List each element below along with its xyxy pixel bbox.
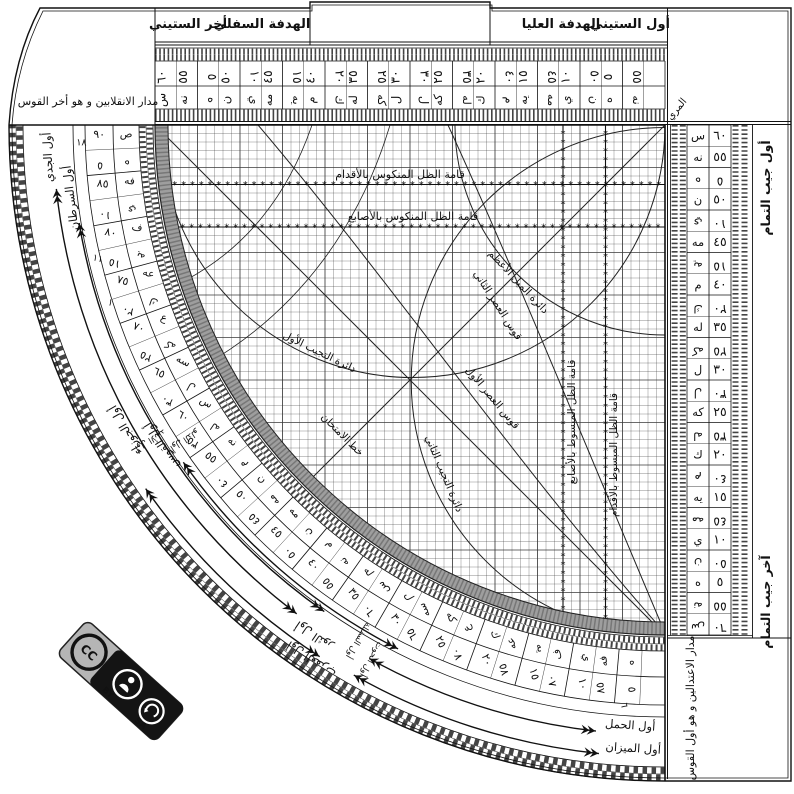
asterisk-mark: * [472, 180, 477, 191]
asterisk-mark: * [278, 180, 283, 191]
sixty-scale-abjad: ن [218, 96, 232, 104]
asterisk-mark: * [629, 223, 634, 234]
asterisk-mark: * [375, 180, 380, 191]
asterisk-mark: * [427, 223, 432, 234]
asterisk-mark: * [444, 223, 449, 234]
cosine-scale-numeral-complement: ٥٠ [713, 557, 726, 572]
asterisk-mark: * [233, 223, 238, 234]
asterisk-mark: * [190, 180, 195, 191]
asterisk-mark: * [242, 223, 247, 234]
cosine-scale-abjad-complement: نه [693, 600, 702, 614]
sixty-scale-abjad: كه [431, 94, 445, 106]
asterisk-mark: * [550, 223, 555, 234]
asterisk-mark: * [462, 223, 467, 234]
asterisk-mark: * [331, 180, 336, 191]
cosine-scale-numeral: ٦٠ [713, 128, 726, 143]
sixty-scale-abjad-complement: كه [375, 94, 389, 106]
cosine-scale-numeral: ٤٠ [713, 276, 726, 291]
asterisk-mark: * [541, 223, 546, 234]
limb-degree-abjad-complement: ه [124, 158, 130, 170]
cosine-scale-numeral-complement: ٤٠ [713, 472, 726, 487]
asterisk-mark: * [268, 223, 273, 234]
limb-degree-abjad-complement: فه [597, 655, 610, 667]
asterisk-mark: * [480, 180, 485, 191]
sixty-scale-abjad: مه [261, 94, 275, 106]
limb-degree-numeral-complement: ٥ [97, 159, 104, 172]
asterisk-mark: * [189, 223, 194, 234]
asterisk-mark: * [234, 180, 239, 191]
asterisk-mark: * [198, 223, 203, 234]
asterisk-mark: * [419, 180, 424, 191]
asterisk-mark: * [568, 180, 573, 191]
cosine-scale-numeral-complement: ١٠ [713, 217, 726, 232]
asterisk-mark: * [577, 180, 582, 191]
limb-degree-numeral-complement: ١٠ [98, 208, 112, 223]
asterisk-mark: * [436, 223, 441, 234]
sixty-scale-numeral-complement: ١٥ [290, 70, 305, 83]
sixty-scale-abjad: ك [473, 95, 487, 104]
asterisk-mark: * [321, 223, 326, 234]
limb-degree-numeral-complement: ٨٠ [544, 674, 559, 688]
cosine-scale-abjad-complement: ل [694, 387, 702, 401]
asterisk-mark: * [445, 180, 450, 191]
sixty-scale-numeral-complement: ٥ [205, 74, 220, 81]
asterisk-mark: * [207, 223, 212, 234]
cosine-scale-abjad: ن [694, 192, 702, 206]
sixty-scale-abjad-complement: م [503, 96, 517, 103]
asterisk-mark: * [568, 223, 573, 234]
asterisk-mark: * [374, 223, 379, 234]
label-madar-itidalayn: مدار الاعتدالين و هو أول القوس [683, 635, 697, 780]
cosine-scale-numeral-complement: ٥ [717, 175, 724, 190]
sixty-scale-numeral-complement: ٤٥ [545, 70, 560, 83]
asterisk-mark: * [366, 180, 371, 191]
asterisk-mark: * [621, 180, 626, 191]
asterisk-mark: * [497, 223, 502, 234]
cosine-scale-abjad: ك [693, 447, 702, 461]
asterisk-mark: * [172, 180, 177, 191]
asterisk-mark: * [595, 180, 600, 191]
cosine-scale-numeral-complement: ١٥ [713, 260, 726, 275]
asterisk-mark: * [277, 223, 282, 234]
asterisk-mark: * [286, 223, 291, 234]
sixty-scale-abjad-complement: ه [205, 97, 219, 103]
asterisk-mark: * [542, 180, 547, 191]
sixty-scale-numeral: ٦٠ [154, 70, 169, 83]
cosine-scale-abjad-complement: كه [692, 345, 704, 359]
cosine-scale-numeral-complement: ٤٥ [713, 515, 726, 530]
asterisk-mark: * [252, 180, 257, 191]
asterisk-mark: * [181, 180, 186, 191]
cosine-scale-abjad-complement: ك [693, 302, 702, 316]
asterisk-mark: * [488, 223, 493, 234]
cosine-scale-numeral: ١٥ [713, 489, 726, 504]
sine-quadrant-diagram: ****************************************… [0, 0, 794, 794]
asterisk-mark: * [260, 223, 265, 234]
asterisk-mark: * [260, 180, 265, 191]
asterisk-mark: * [348, 223, 353, 234]
cosine-scale-abjad-complement: ه [695, 175, 701, 189]
cosine-scale-numeral: ٢٠ [713, 446, 726, 461]
asterisk-mark: * [313, 180, 318, 191]
asterisk-mark: * [453, 223, 458, 234]
cosine-scale-abjad: يه [693, 490, 702, 504]
limb-degree-numeral: ١٠ [576, 677, 591, 691]
asterisk-mark: * [594, 223, 599, 234]
asterisk-mark: * [428, 180, 433, 191]
asterisk-mark: * [243, 180, 248, 191]
limb-degree-abjad: ف [131, 221, 144, 235]
label-awwal-jayb-tamam: أول جيب التمام [757, 140, 774, 235]
asterisk-mark: * [383, 223, 388, 234]
limb-degree-abjad-complement: ف [550, 648, 564, 661]
asterisk-mark: * [356, 223, 361, 234]
sixty-scale-abjad-complement: ك [333, 95, 347, 104]
cosine-scale-numeral: ٥٥ [713, 149, 726, 164]
limb-degree-numeral: ٨٥ [96, 177, 109, 191]
cosine-scale-numeral: ٣٥ [713, 319, 726, 334]
sixty-scale-numeral-complement: ٢٥ [375, 70, 390, 83]
asterisk-mark: * [524, 180, 529, 191]
asterisk-mark: * [585, 223, 590, 234]
sixty-scale-abjad-complement: مه [545, 94, 559, 106]
asterisk-mark: * [612, 223, 617, 234]
asterisk-mark: * [339, 223, 344, 234]
asterisk-mark: * [312, 223, 317, 234]
asterisk-mark: * [296, 180, 301, 191]
limb-degree-abjad: فه [124, 175, 136, 188]
cosine-scale-numeral: ٤٥ [713, 234, 726, 249]
sixty-scale-numeral-complement: ٥٠ [588, 70, 603, 83]
grid-label-mankus-aqdam: قامة الظل المنكوس بالأقدام [335, 167, 465, 181]
cosine-scale-numeral: ٢٥ [713, 404, 726, 419]
cosine-scale-numeral: ٣٠ [713, 361, 726, 376]
asterisk-mark: * [287, 180, 292, 191]
cosine-scale-numeral-complement: ٣٥ [713, 430, 726, 445]
asterisk-mark: * [409, 223, 414, 234]
cosine-scale-abjad-complement: م [694, 472, 701, 486]
asterisk-mark: * [216, 180, 221, 191]
cosine-scale-numeral-complement: ٢٠ [713, 302, 726, 317]
asterisk-mark: * [392, 223, 397, 234]
asterisk-mark: * [576, 223, 581, 234]
asterisk-mark: * [630, 180, 635, 191]
cosine-scale-numeral-complement: ٦٠ [713, 621, 726, 636]
sixty-scale-abjad-complement: ي [248, 95, 262, 104]
limb-extra-mark: ٦ [618, 702, 629, 708]
cosine-scale-numeral-complement: ٢٥ [713, 345, 726, 360]
cosine-scale-abjad-complement: مه [692, 515, 704, 529]
grid-label-mabsut-aqdam: قامة الظل المبسوط بالأقدام [607, 393, 620, 517]
cosine-scale-abjad: س [691, 129, 705, 144]
sixty-scale-abjad: ي [558, 95, 572, 104]
asterisk-mark: * [322, 180, 327, 191]
asterisk-mark: * [208, 180, 213, 191]
sixty-scale-numeral-complement: ٢٠ [333, 70, 348, 83]
asterisk-mark: * [656, 180, 661, 191]
limb-degree-abjad: ه [627, 660, 639, 666]
asterisk-mark: * [533, 180, 538, 191]
sixty-scale-numeral-complement: ١٠ [248, 70, 263, 83]
title-awwal-sittini: أول الستيني [590, 15, 670, 32]
cosine-scale-abjad-complement: ن [694, 557, 702, 571]
limb-degree-numeral: ٩٠ [93, 128, 105, 141]
cosine-scale-numeral: ٥٠ [713, 191, 726, 206]
cosine-scale-abjad: ل [694, 362, 702, 376]
asterisk-mark: * [638, 223, 643, 234]
grid-label-mabsut-asabi: قامة الظل المبسوط بالأصابع [565, 360, 578, 485]
cosine-scale-abjad: ه [695, 575, 701, 589]
label-madar-inqilabayn: مدار الانقلابين و هو أخر القوس [18, 94, 159, 108]
sixty-scale-abjad-complement: ل [418, 96, 432, 104]
asterisk-mark: * [506, 223, 511, 234]
asterisk-mark: * [400, 223, 405, 234]
sixty-scale-numeral-complement: ٤٠ [503, 70, 518, 83]
asterisk-mark: * [269, 180, 274, 191]
asterisk-mark: * [225, 180, 230, 191]
asterisk-mark: * [524, 223, 529, 234]
grid-label-mankus-asabi: قامة الظل المنكوس بالأصابع [348, 209, 478, 223]
asterisk-mark: * [454, 180, 459, 191]
limb-extra-mark: ١٨ [76, 137, 87, 148]
asterisk-mark: * [392, 180, 397, 191]
asterisk-mark: * [348, 180, 353, 191]
sixty-scale-abjad-complement: يه [290, 95, 304, 104]
asterisk-mark: * [304, 180, 309, 191]
cosine-scale-abjad: ي [693, 532, 702, 546]
asterisk-mark: * [516, 180, 521, 191]
asterisk-mark: * [489, 180, 494, 191]
sixty-scale-abjad: يه [516, 95, 530, 104]
sixty-scale-abjad: م [303, 96, 317, 103]
asterisk-mark: * [180, 223, 185, 234]
asterisk-mark: * [216, 223, 221, 234]
asterisk-mark: * [612, 180, 617, 191]
title-hadafa-sufla: الهدفة السفلي [214, 17, 311, 32]
asterisk-mark: * [436, 180, 441, 191]
asterisk-mark: * [401, 180, 406, 191]
asterisk-mark: * [639, 180, 644, 191]
cosine-scale-numeral: ١٠ [713, 531, 726, 546]
asterisk-mark: * [251, 223, 256, 234]
title-hadafa-ulya: الهدفة العليا [522, 17, 601, 32]
asterisk-mark: * [532, 223, 537, 234]
asterisk-mark: * [199, 180, 204, 191]
cosine-scale-abjad: كه [692, 405, 704, 419]
sixty-scale-abjad: له [346, 95, 360, 105]
asterisk-mark: * [586, 180, 591, 191]
cosine-scale-numeral-complement: ٣٠ [713, 387, 726, 402]
cosine-scale-abjad: نه [693, 150, 702, 164]
sixty-scale-numeral-complement: ٣٠ [418, 70, 433, 83]
sixty-scale-numeral-complement: ٥٥ [630, 70, 645, 83]
asterisk-mark: * [656, 223, 661, 234]
limb-degree-numeral-complement: ٨٥ [593, 681, 607, 694]
cosine-scale-numeral-complement: ٥٥ [713, 600, 726, 615]
sixty-scale-abjad: ل [388, 96, 402, 104]
asterisk-mark: * [620, 223, 625, 234]
asterisk-mark: * [647, 223, 652, 234]
cosine-scale-abjad-complement: يه [693, 260, 702, 274]
sine-quadrant-page: ****************************************… [0, 0, 794, 794]
cosine-scale-abjad-complement: ي [693, 217, 702, 231]
asterisk-mark: * [507, 180, 512, 191]
asterisk-mark: * [498, 180, 503, 191]
limb-degree-numeral: ٥ [625, 686, 638, 693]
asterisk-mark: * [365, 223, 370, 234]
sixty-scale-numeral-complement: ٣٥ [460, 70, 475, 83]
limb-degree-numeral: ٨٠ [104, 225, 118, 240]
asterisk-mark: * [304, 223, 309, 234]
asterisk-mark: * [515, 223, 520, 234]
asterisk-mark: * [463, 180, 468, 191]
cosine-scale-abjad: مه [692, 235, 704, 249]
cosine-scale-numeral: ٥ [717, 574, 724, 589]
sixty-scale-abjad-complement: له [460, 95, 474, 105]
asterisk-mark: * [480, 223, 485, 234]
asterisk-mark: * [648, 180, 653, 191]
asterisk-mark: * [224, 223, 229, 234]
asterisk-mark: * [357, 180, 362, 191]
asterisk-mark: * [410, 180, 415, 191]
sixty-scale-abjad: ه [601, 97, 615, 103]
label-akhir-jayb-tamam: آخر جيب التمام [758, 555, 774, 649]
sixty-scale-numeral: ٥٥ [175, 70, 190, 83]
sixty-scale-abjad-complement: نه [630, 95, 644, 104]
asterisk-mark: * [330, 223, 335, 234]
limb-degree-abjad: ص [120, 128, 133, 140]
cosine-scale-abjad: م [694, 277, 701, 291]
cosine-scale-abjad: له [693, 320, 703, 334]
cosine-scale-abjad-complement: له [693, 430, 703, 444]
asterisk-mark: * [340, 180, 345, 191]
sixty-scale-abjad: نه [176, 95, 190, 104]
asterisk-mark: * [295, 223, 300, 234]
asterisk-mark: * [551, 180, 556, 191]
sixty-scale-abjad-complement: ن [588, 96, 602, 104]
asterisk-mark: * [471, 223, 476, 234]
asterisk-mark: * [418, 223, 423, 234]
asterisk-mark: * [384, 180, 389, 191]
cosine-scale-abjad-complement: س [691, 620, 705, 635]
